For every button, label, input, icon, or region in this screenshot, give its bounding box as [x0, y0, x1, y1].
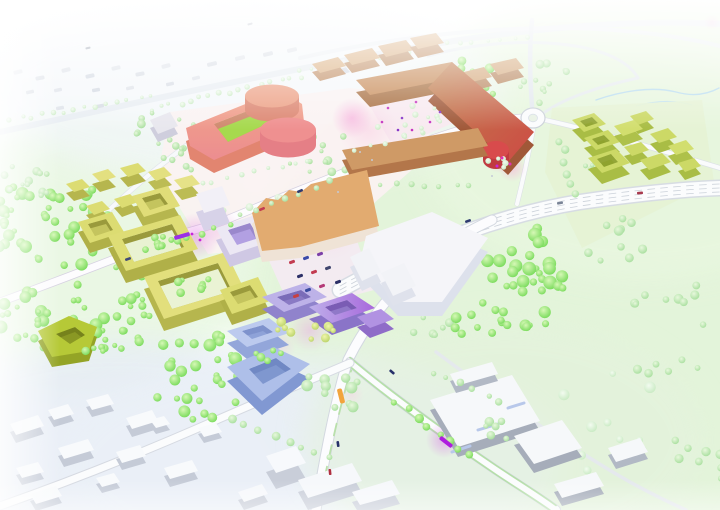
vignette-top — [0, 0, 720, 130]
vignette-left — [0, 0, 60, 510]
masterplan-viewport — [0, 0, 720, 510]
masterplan-render — [0, 0, 720, 510]
vignette-bottom — [0, 480, 720, 510]
